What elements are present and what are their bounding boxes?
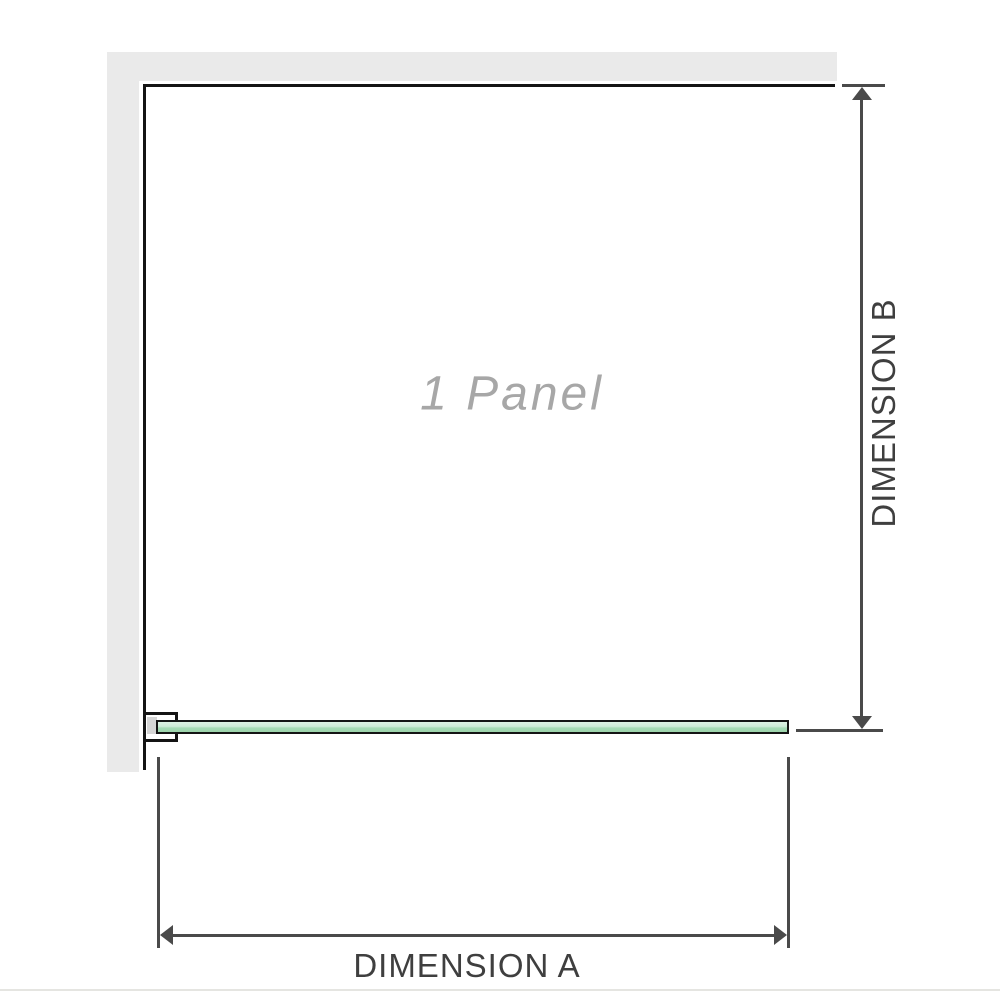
dimension-a-right-extension-line (787, 757, 790, 948)
panel-outline-left-edge (143, 84, 146, 770)
dimension-a-line (171, 934, 775, 937)
dimension-b-line (860, 99, 863, 719)
panel-count-label: 1 Panel (420, 367, 604, 422)
arrow-right-icon (774, 925, 787, 945)
dimension-b-bottom-tick (796, 729, 883, 732)
arrow-down-icon (852, 716, 872, 729)
dimension-a-left-extension-line (157, 757, 160, 948)
wall-left (107, 52, 139, 772)
shower-panel-diagram: 1 Panel DIMENSION B DIMENSION A (0, 0, 1000, 1000)
wall-top (107, 52, 837, 81)
panel-outline-top-edge (143, 84, 835, 87)
dimension-b-label: DIMENSION B (865, 298, 903, 527)
glass-panel (156, 720, 789, 734)
page-baseline (0, 989, 1000, 991)
dimension-a-label: DIMENSION A (353, 947, 580, 985)
